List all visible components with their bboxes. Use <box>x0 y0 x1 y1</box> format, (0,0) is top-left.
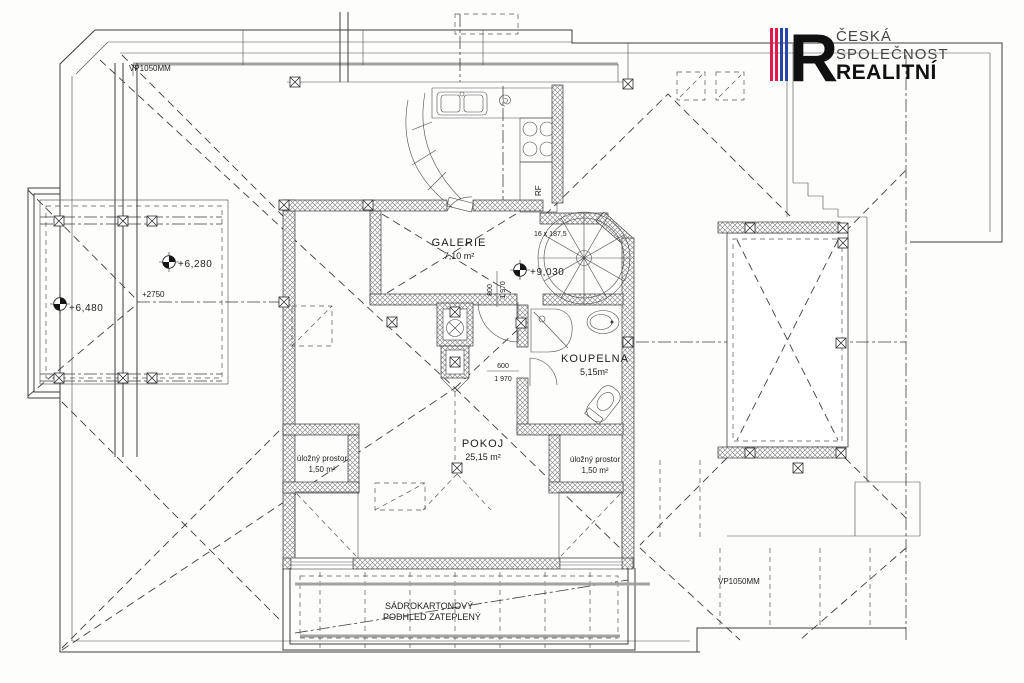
beam-anchor-icon <box>54 216 64 226</box>
level-marker-icon <box>159 252 179 272</box>
skylight-markers <box>677 72 744 100</box>
ridge-height-note: +2750 <box>142 290 165 299</box>
logo-stripe-red-icon <box>770 28 773 81</box>
room-area-storage-right: 1,50 m² <box>581 466 608 475</box>
door-bath-height: 1 970 <box>494 376 512 383</box>
vp-note-bottom: VP1050MM <box>718 577 760 586</box>
door-gallery <box>447 197 473 212</box>
labels: VP1050MM VP1050MM +6,280 +6,480 +2750 +9… <box>50 64 760 622</box>
logo-stripe-blue-icon <box>785 28 788 81</box>
wall-right <box>622 238 634 568</box>
beam-anchor-icon <box>836 448 846 458</box>
logo-stripe-red-icon <box>775 28 778 81</box>
shower-tray <box>531 309 572 352</box>
room-name-koupelna: KOUPELNA <box>561 353 629 365</box>
floor-plan-page: RF <box>0 0 1024 683</box>
wall-storage-right-bottom <box>549 482 623 493</box>
room-area-storage-left: 1,50 m² <box>308 465 335 474</box>
beam-anchor-icon <box>793 463 803 473</box>
toilet <box>583 382 624 425</box>
room-area-pokoj: 25,15 m² <box>465 452 501 462</box>
stair-dimension: 16 x 187,5 <box>534 231 567 238</box>
wall-storage-left-bottom <box>283 482 359 493</box>
floor-plan-drawing: RF <box>0 0 1024 683</box>
beam-anchor-icon <box>838 223 848 233</box>
beam-anchor-icon <box>745 448 755 458</box>
wall-galerie-left <box>370 211 381 303</box>
room-name-pokoj: POKOJ <box>462 438 504 450</box>
logo-text-line1: ČESKÁ <box>836 28 892 45</box>
faucet-icon <box>460 92 464 96</box>
door-bathroom <box>478 302 518 342</box>
kitchen-below: RF <box>406 85 563 212</box>
vp-note-top: VP1050MM <box>129 64 171 73</box>
room-area-galerie: 7,10 m² <box>444 251 475 261</box>
ceiling-note-line2: PODHLED ZATEPLENÝ <box>383 612 481 622</box>
door-shower <box>530 358 557 386</box>
beam-anchor-icon <box>450 307 460 317</box>
door-bath-width: 600 <box>497 363 509 370</box>
beam-anchor-icon <box>838 238 848 248</box>
fridge-label: RF <box>534 185 543 196</box>
room-name-galerie: GALERIE <box>432 237 487 249</box>
logo-stripe-blue-icon <box>780 28 783 81</box>
wall-bath-bottom <box>517 424 623 435</box>
level-gallery: +9,030 <box>530 267 564 278</box>
right-wing <box>718 222 848 473</box>
washbasin <box>587 311 619 334</box>
wall-top-b <box>473 200 543 211</box>
logo-text-line3: REALITNÍ <box>836 61 937 84</box>
wall-storage-left-top <box>283 424 359 435</box>
level-marker-icon <box>510 260 530 280</box>
beam-anchor-icon <box>54 373 64 383</box>
beam-anchor-icon <box>452 463 462 473</box>
beam-anchor-icon <box>147 216 157 226</box>
beam-anchor-icon <box>836 338 846 348</box>
level-left-outer: +6,480 <box>69 303 103 314</box>
beam-anchor-icon <box>118 373 128 383</box>
wall-bottom-a <box>283 558 291 569</box>
vent-spiral-icon <box>500 95 511 106</box>
beam-anchor-icon <box>450 357 460 367</box>
room-area-koupelna: 5,15m² <box>580 367 608 377</box>
logo-monogram: R <box>789 20 838 96</box>
beam-anchor-icon <box>147 373 157 383</box>
room-name-storage-left: úložný prostor <box>297 454 348 463</box>
wall-left <box>283 200 295 568</box>
level-left-inner: +6,280 <box>178 259 212 270</box>
beam-anchor-icon <box>745 223 755 233</box>
beam-anchor-icon <box>118 216 128 226</box>
door-gallery-height: 1 970 <box>500 281 507 299</box>
wall-bath-top <box>543 294 623 305</box>
level-marker-icon <box>50 294 70 314</box>
ceiling-note-line1: SÁDROKARTONOVÝ <box>385 601 473 611</box>
wall-bottom-b <box>353 558 560 569</box>
room-name-storage-right: úložný prostor <box>570 455 621 464</box>
wall-bottom-c <box>622 558 633 569</box>
door-gallery-width: 800 <box>487 284 494 296</box>
brand-logo: R ČESKÁ SPOLEČNOST REALITNÍ <box>770 20 949 96</box>
